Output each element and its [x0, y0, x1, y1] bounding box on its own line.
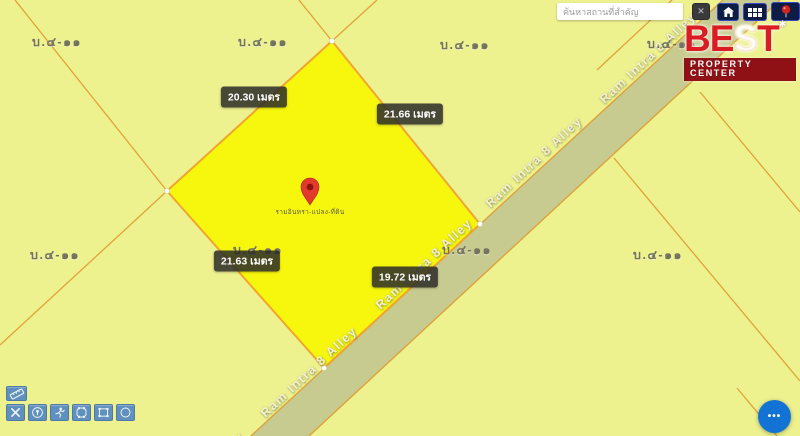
measure-path-button[interactable] — [50, 404, 69, 421]
measurement-chip-bottom-left: 21.63 เมตร — [214, 251, 280, 272]
rectangle-tool-icon — [97, 406, 110, 419]
pin-caption: รามอินทรา-แปลง-ที่ดิน — [275, 207, 344, 217]
parcel-zone-label: บ.๔-๑๑ — [32, 32, 82, 52]
map-canvas[interactable] — [0, 0, 800, 436]
street-pin-button[interactable] — [771, 2, 800, 21]
drawing-toolbar — [6, 404, 135, 421]
home-icon — [722, 6, 735, 18]
more-options-button[interactable]: ••• — [758, 400, 791, 433]
clear-shapes-button[interactable] — [6, 404, 25, 421]
place-marker-button[interactable] — [28, 404, 47, 421]
parcel-zone-label: บ.๔-๑๑ — [647, 34, 697, 54]
parcel-zone-label: บ.๔-๑๑ — [440, 35, 490, 55]
crossed-tools-icon — [9, 406, 22, 419]
ruler-tool-button[interactable] — [6, 386, 27, 401]
ellipsis-icon: ••• — [768, 411, 782, 422]
map-app-window: Ram Intra 8 Alley Ram Intra 8 Alley Ram … — [0, 0, 800, 436]
draw-circle-button[interactable] — [116, 404, 135, 421]
circle-tool-icon — [119, 406, 132, 419]
grid-icon — [747, 7, 763, 18]
close-icon: ✕ — [697, 6, 705, 17]
parcel-zone-label: บ.๔-๑๑ — [238, 32, 288, 52]
draw-rectangle-button[interactable] — [94, 404, 113, 421]
search-close-button[interactable]: ✕ — [692, 3, 710, 20]
polygon-tool-icon — [75, 406, 88, 419]
grid-view-button[interactable] — [743, 3, 767, 21]
red-pin-icon — [779, 4, 793, 19]
runner-icon — [53, 406, 66, 419]
home-button[interactable] — [717, 3, 739, 21]
search-input[interactable] — [557, 3, 683, 20]
draw-polygon-button[interactable] — [72, 404, 91, 421]
parcel-zone-label: บ.๔-๑๑ — [633, 245, 683, 265]
parcel-zone-label: บ.๔-๑๑ — [442, 240, 492, 260]
marker-circle-icon — [31, 406, 44, 419]
ruler-icon — [9, 388, 25, 400]
measurement-chip-top-left: 20.30 เมตร — [221, 87, 287, 108]
parcel-zone-label: บ.๔-๑๑ — [30, 245, 80, 265]
measurement-chip-top-right: 21.66 เมตร — [377, 104, 443, 125]
measurement-chip-bottom-right: 19.72 เมตร — [372, 267, 438, 288]
